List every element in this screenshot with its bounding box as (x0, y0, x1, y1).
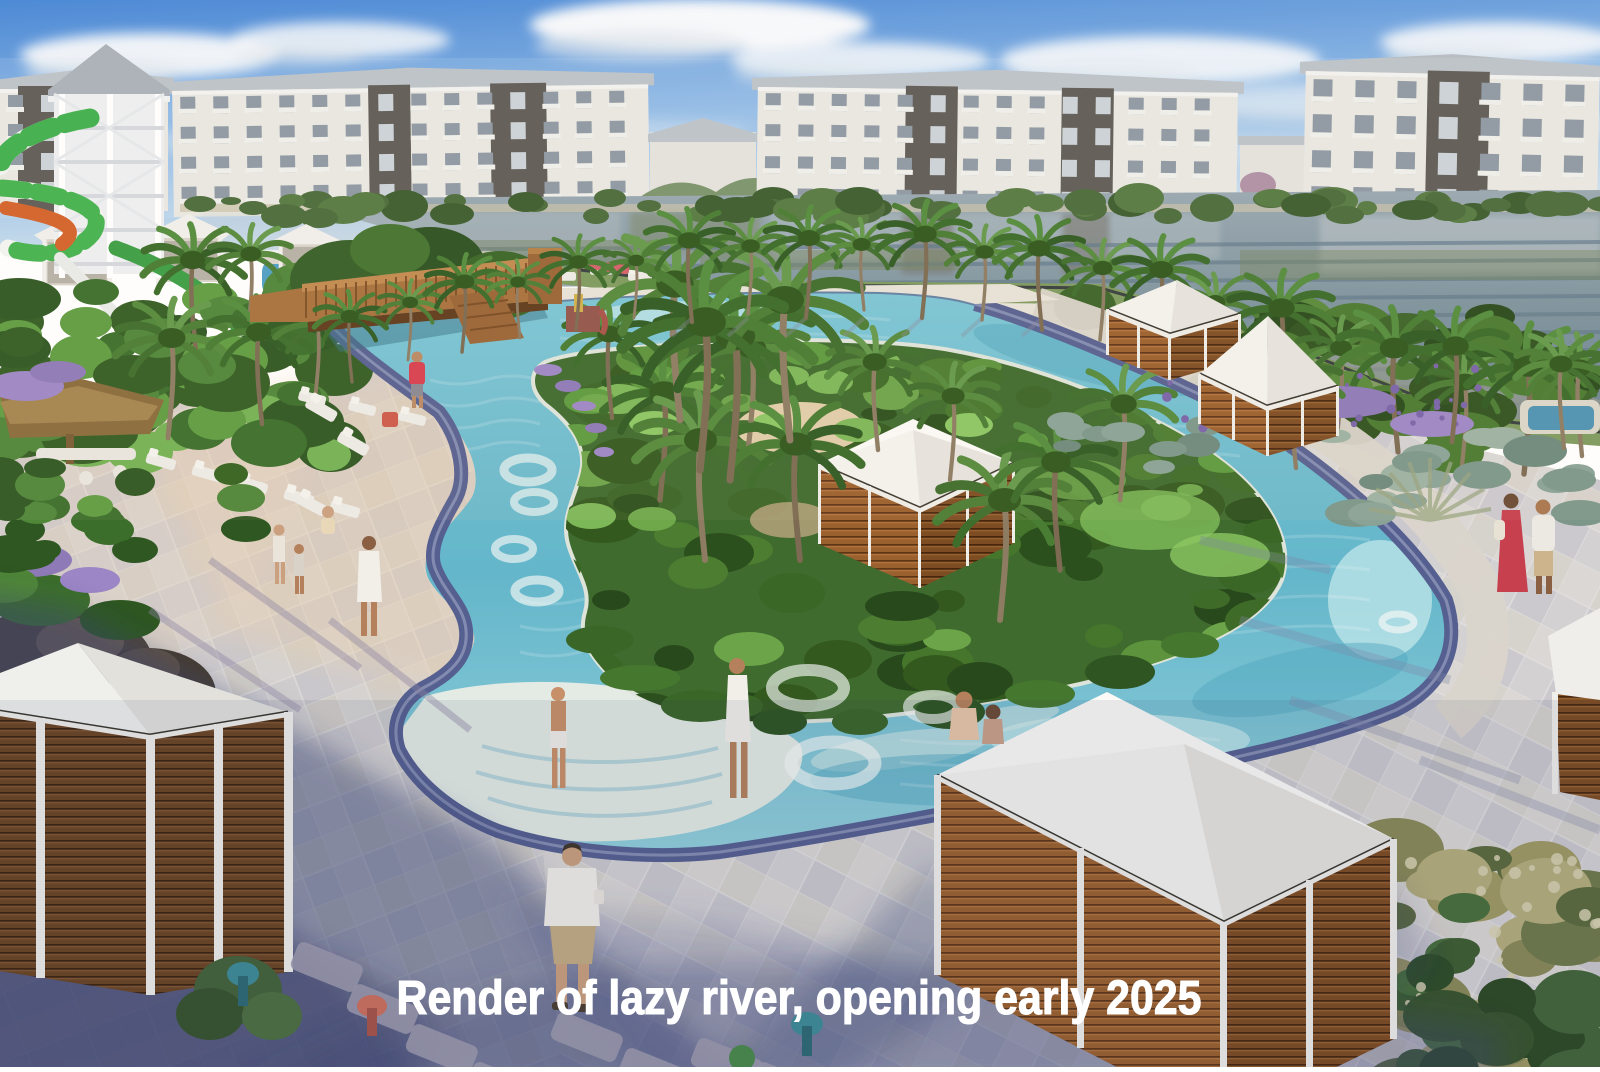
svg-text:Render of lazy river, opening: Render of lazy river, opening early 2025 (397, 972, 1202, 1025)
